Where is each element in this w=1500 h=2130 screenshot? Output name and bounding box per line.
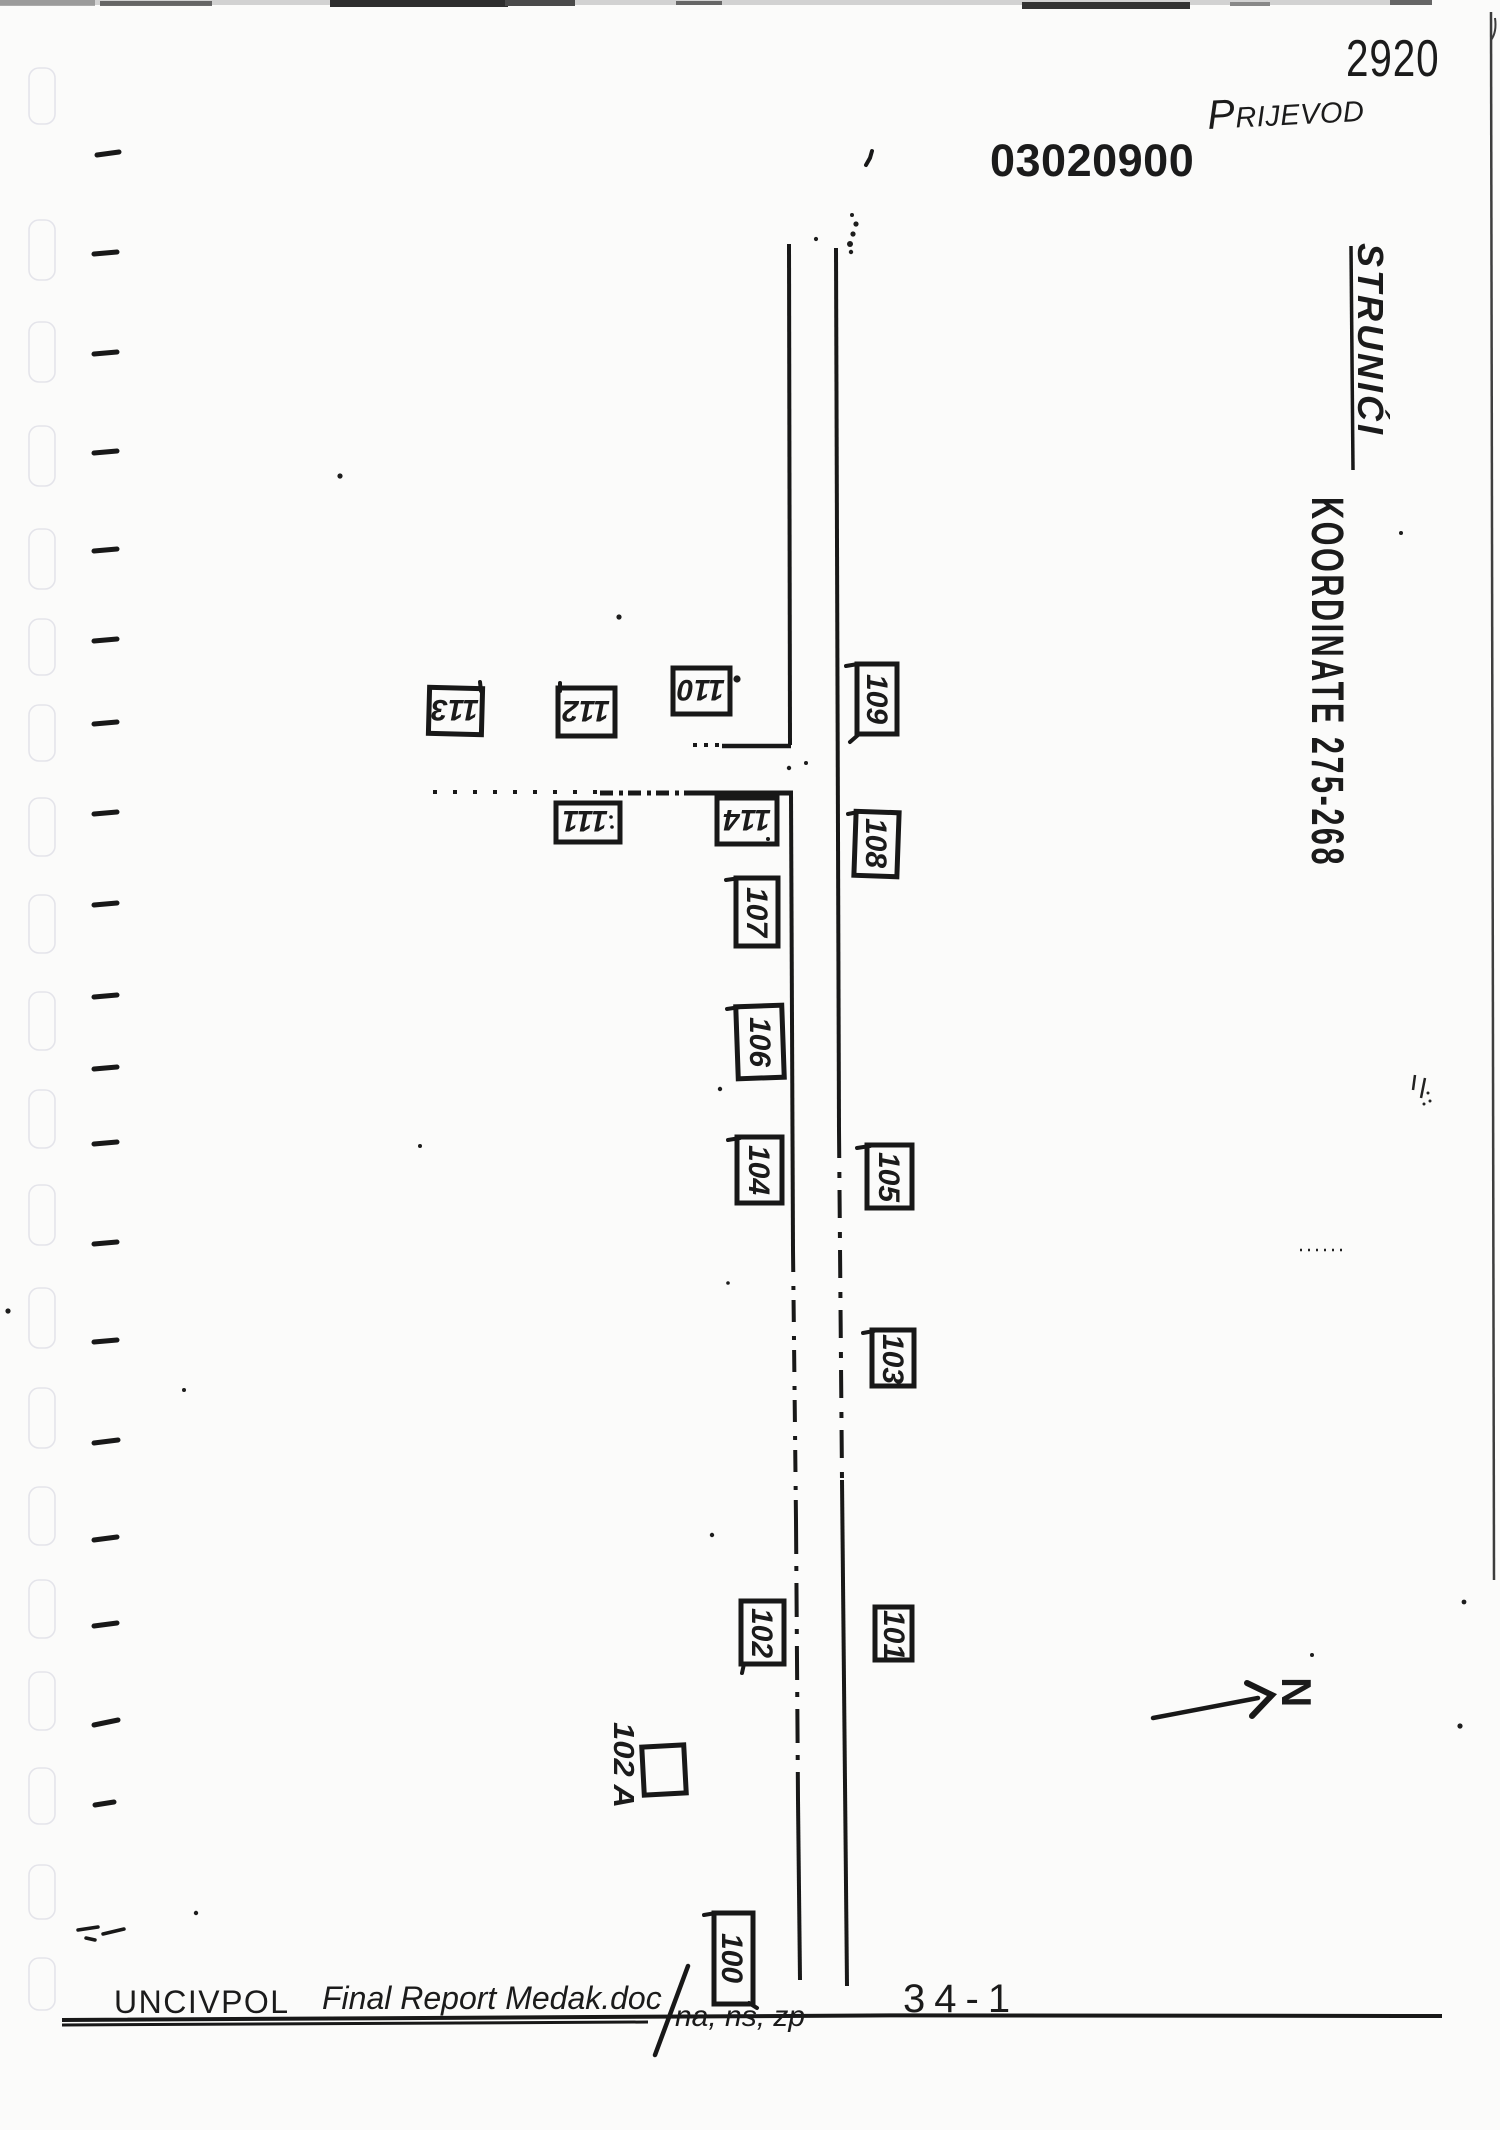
svg-text:107: 107 (740, 887, 773, 938)
svg-text:100: 100 (715, 1933, 748, 1983)
svg-text:na, ns, zp: na, ns, zp (675, 2000, 805, 2033)
svg-text:114: 114 (723, 803, 771, 836)
svg-text:N: N (1273, 1677, 1320, 1707)
svg-text:KOORDINATE 275-268: KOORDINATE 275-268 (1301, 497, 1351, 867)
svg-text:103: 103 (876, 1334, 909, 1384)
svg-text:2920: 2920 (1346, 29, 1440, 87)
svg-text:03020900: 03020900 (990, 135, 1194, 186)
svg-text:UNCIVPOL: UNCIVPOL (114, 1984, 290, 2020)
svg-text:110: 110 (677, 673, 725, 706)
svg-text:101: 101 (877, 1610, 910, 1660)
svg-text:106: 106 (743, 1017, 776, 1067)
svg-text:112: 112 (562, 694, 610, 727)
svg-text:102 A: 102 A (607, 1722, 640, 1808)
svg-text:102: 102 (745, 1608, 778, 1658)
svg-text:108: 108 (859, 818, 892, 868)
svg-text:113: 113 (431, 693, 479, 726)
svg-text:STRUNIĆI: STRUNIĆI (1350, 243, 1391, 437)
svg-text:34-1: 34-1 (903, 1977, 1019, 2021)
svg-text:111: 111 (562, 804, 608, 837)
svg-text:105: 105 (872, 1152, 905, 1203)
svg-text:104: 104 (742, 1145, 775, 1195)
svg-text:109: 109 (860, 674, 893, 724)
svg-text:Final Report Medak.doc: Final Report Medak.doc (322, 1980, 662, 2016)
